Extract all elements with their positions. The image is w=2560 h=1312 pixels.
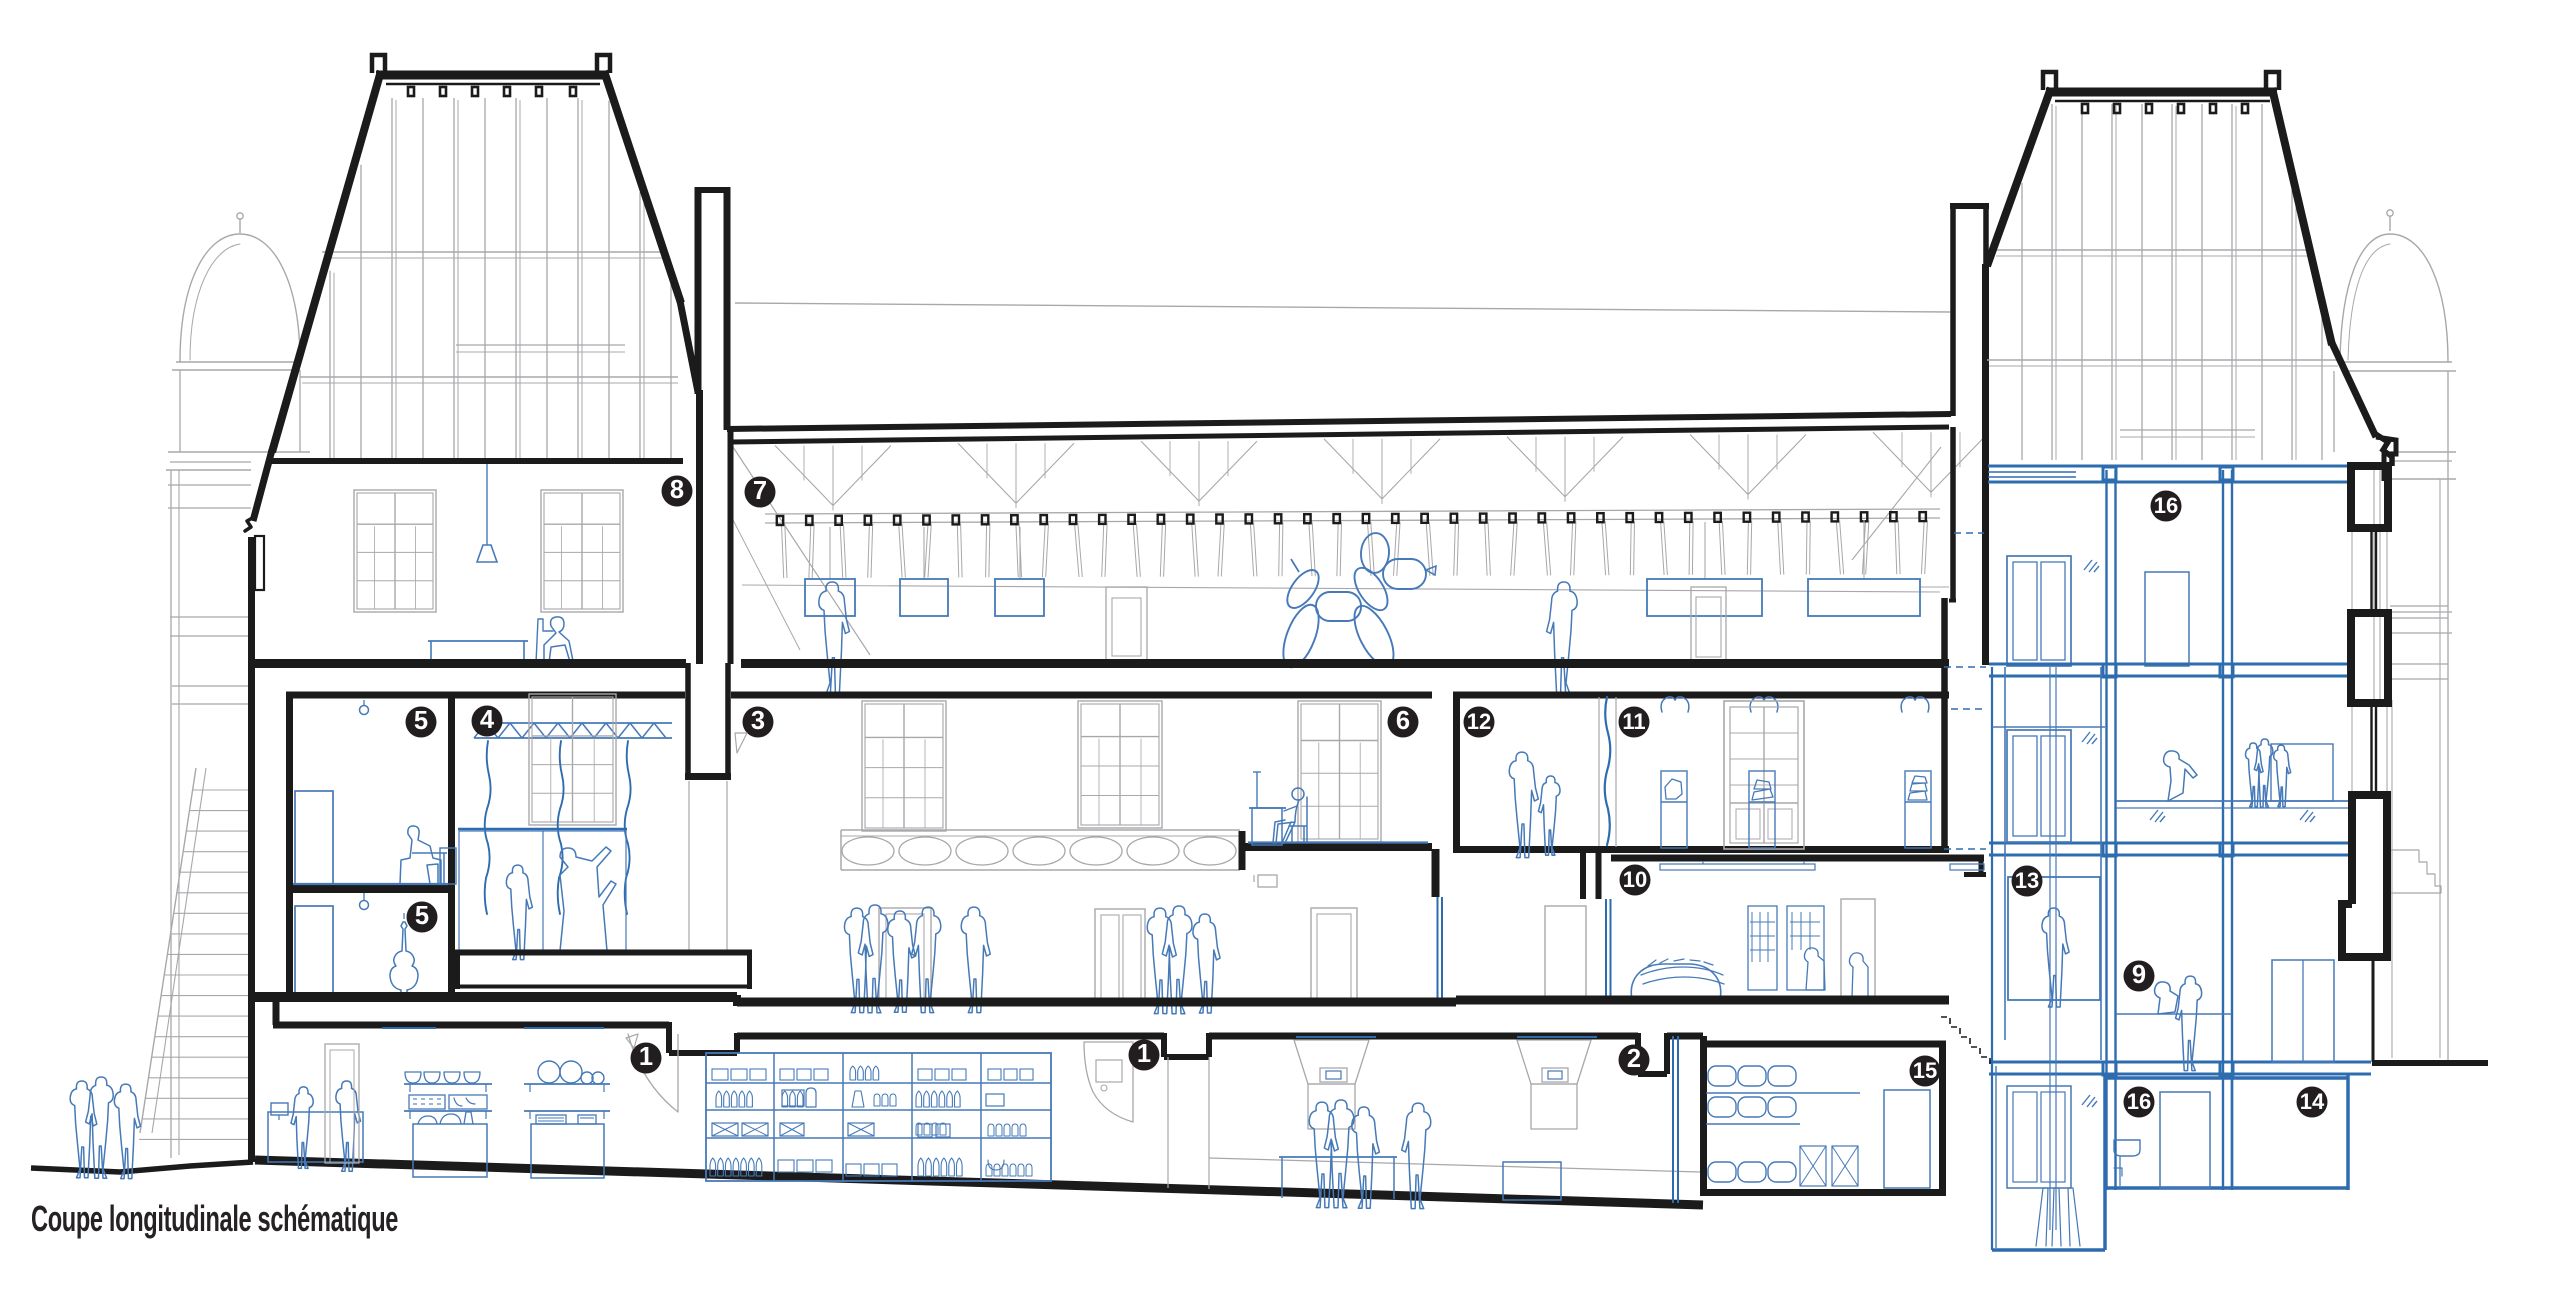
svg-text:8: 8: [670, 476, 684, 504]
svg-text:12: 12: [1467, 709, 1491, 734]
svg-text:7: 7: [753, 477, 767, 505]
svg-text:11: 11: [1622, 709, 1645, 734]
svg-text:3: 3: [751, 707, 765, 735]
svg-text:Coupe longitudinale schématiqu: Coupe longitudinale schématique: [31, 1199, 398, 1239]
svg-text:1: 1: [639, 1043, 653, 1071]
svg-text:16: 16: [2154, 493, 2178, 518]
svg-text:1: 1: [1137, 1040, 1151, 1068]
svg-text:14: 14: [2300, 1089, 2325, 1114]
svg-text:4: 4: [480, 706, 495, 734]
svg-text:16: 16: [2127, 1089, 2151, 1114]
svg-text:5: 5: [414, 707, 428, 735]
svg-text:9: 9: [2132, 961, 2146, 989]
svg-text:15: 15: [1913, 1058, 1937, 1083]
svg-text:2: 2: [1627, 1045, 1641, 1073]
svg-text:5: 5: [415, 902, 429, 930]
svg-text:13: 13: [2015, 868, 2039, 893]
svg-text:10: 10: [1623, 867, 1647, 892]
svg-text:6: 6: [1396, 707, 1410, 735]
